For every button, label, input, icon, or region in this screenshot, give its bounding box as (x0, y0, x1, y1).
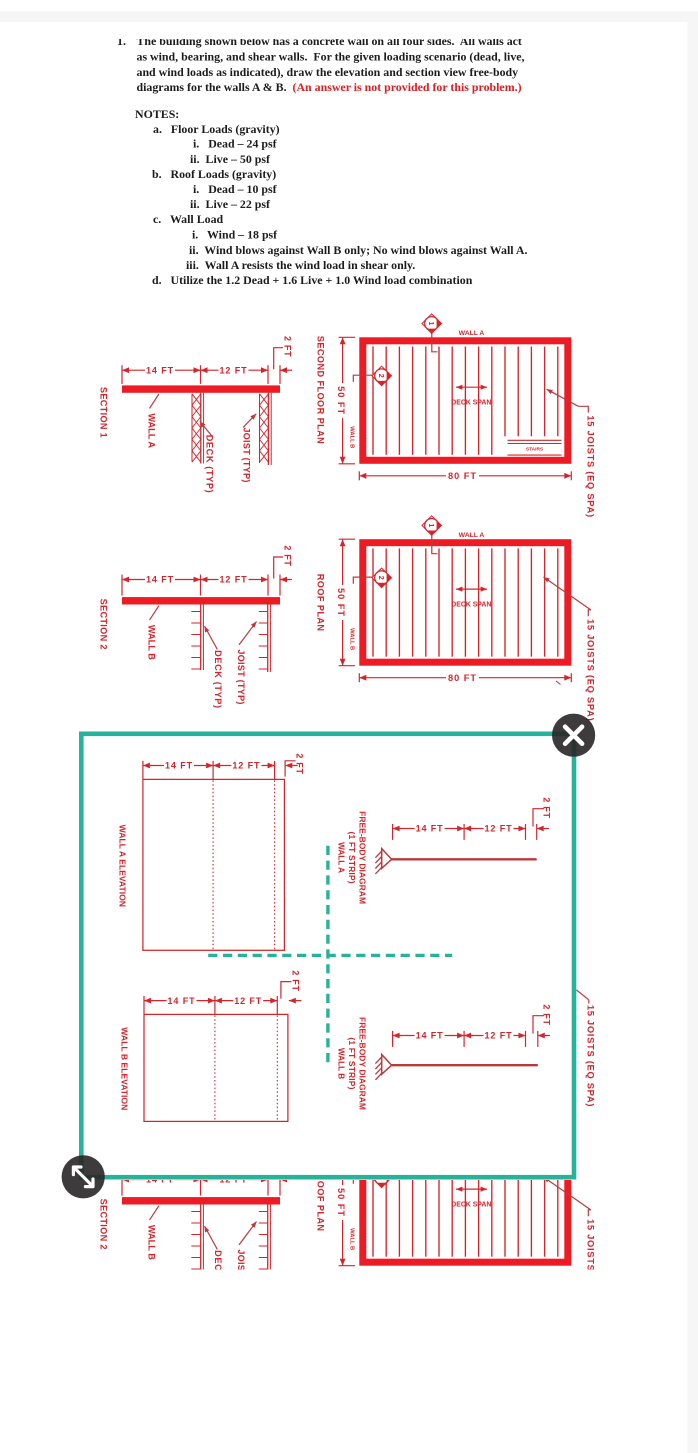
svg-text:FREE-BODY DIAGRAM: FREE-BODY DIAGRAM (358, 1017, 368, 1110)
svg-text:i. Dead – 24 psf: i. Dead – 24 psf (193, 137, 278, 151)
svg-text:12 FT: 12 FT (232, 761, 260, 771)
svg-text:DECK (TYP): DECK (TYP) (205, 435, 215, 494)
svg-text:WALL A: WALL A (459, 532, 485, 539)
svg-text:a. Floor Loads (gravity): a. Floor Loads (gravity) (153, 122, 280, 136)
svg-text:14 FT: 14 FT (146, 365, 174, 375)
svg-text:12 FT: 12 FT (484, 824, 512, 834)
svg-text:1: 1 (427, 322, 436, 326)
svg-text:14 FT: 14 FT (146, 575, 174, 585)
svg-text:WALL B: WALL B (348, 628, 354, 650)
svg-text:1: 1 (427, 523, 436, 527)
svg-text:b. Roof Loads (gravity): b. Roof Loads (gravity) (152, 167, 276, 181)
svg-text:diagrams for the walls A & B.: diagrams for the walls A & B. (An answer… (137, 80, 522, 94)
svg-text:DECK (TYP): DECK (TYP) (213, 650, 223, 709)
svg-text:80 FT: 80 FT (448, 673, 477, 683)
svg-text:WALL A ELEVATION: WALL A ELEVATION (117, 825, 127, 907)
svg-text:14 FT: 14 FT (416, 1031, 444, 1041)
svg-text:15 JOISTS (EQ SPA): 15 JOISTS (EQ SPA) (585, 415, 596, 517)
svg-text:d. Utilize the 1.2 Dead + 1.: d. Utilize the 1.2 Dead + 1.6 Live + 1.0… (152, 273, 473, 287)
svg-text:WALL A: WALL A (147, 413, 157, 448)
svg-text:WALL A: WALL A (336, 842, 345, 873)
svg-text:2 FT: 2 FT (283, 545, 293, 566)
svg-text:DECK SPAN: DECK SPAN (451, 400, 491, 407)
svg-text:WALL A: WALL A (459, 330, 485, 337)
svg-text:2 FT: 2 FT (295, 753, 305, 774)
svg-text:15 JOISTS (EQ SPA): 15 JOISTS (EQ SPA) (585, 619, 596, 721)
svg-text:12 FT: 12 FT (484, 1031, 512, 1041)
svg-text:i. Wind – 18 psf: i. Wind – 18 psf (192, 228, 278, 242)
svg-text:(1 FT STRIP): (1 FT STRIP) (347, 1037, 357, 1089)
svg-text:(1 FT STRIP): (1 FT STRIP) (347, 831, 357, 883)
svg-text:SECTION 2: SECTION 2 (98, 599, 108, 650)
svg-text:WALL B: WALL B (147, 625, 157, 660)
svg-text:ii. Live – 50 psf: ii. Live – 50 psf (190, 152, 271, 166)
svg-text:15 JOISTS (EQ SPA): 15 JOISTS (EQ SPA) (586, 1005, 597, 1107)
svg-text:FREE-BODY DIAGRAM: FREE-BODY DIAGRAM (358, 811, 368, 904)
svg-text:2 FT: 2 FT (541, 1004, 551, 1025)
svg-text:SECTION 1: SECTION 1 (98, 387, 108, 438)
svg-text:14 FT: 14 FT (165, 761, 193, 771)
svg-text:SECOND FLOOR PLAN: SECOND FLOOR PLAN (316, 336, 326, 444)
svg-text:ii. Live – 22 psf: ii. Live – 22 psf (190, 197, 271, 211)
svg-text:iii. Wall A resists the wind: iii. Wall A resists the wind load in she… (186, 258, 415, 272)
svg-text:as wind, bearing, and shear wa: as wind, bearing, and shear walls. For t… (137, 49, 525, 63)
svg-text:2: 2 (377, 374, 386, 378)
svg-text:WALL B: WALL B (336, 1048, 345, 1079)
svg-text:WALL B ELEVATION: WALL B ELEVATION (120, 1027, 130, 1110)
svg-text:c. Wall Load: c. Wall Load (153, 212, 224, 226)
svg-text:12 FT: 12 FT (219, 575, 247, 585)
svg-text:and wind loads as indicated),: and wind loads as indicated), draw the e… (137, 65, 519, 79)
svg-text:2 FT: 2 FT (541, 797, 551, 818)
svg-text:i. Dead – 10 psf: i. Dead – 10 psf (193, 182, 278, 196)
svg-text:50 FT: 50 FT (336, 588, 346, 617)
svg-text:WALL B: WALL B (348, 426, 354, 448)
svg-text:14 FT: 14 FT (167, 996, 195, 1006)
svg-text:JOIST (TYP): JOIST (TYP) (241, 427, 251, 482)
svg-text:2 FT: 2 FT (283, 336, 293, 357)
svg-text:80 FT: 80 FT (448, 471, 477, 481)
svg-text:2 FT: 2 FT (290, 970, 300, 991)
svg-text:ROOF PLAN: ROOF PLAN (316, 574, 326, 632)
svg-text:2: 2 (377, 576, 386, 580)
svg-text:14 FT: 14 FT (416, 824, 444, 834)
svg-text:DECK SPAN: DECK SPAN (451, 602, 491, 609)
svg-text:NOTES:: NOTES: (135, 107, 179, 121)
svg-text:12 FT: 12 FT (219, 365, 247, 375)
svg-text:STAIRS: STAIRS (526, 447, 544, 453)
svg-text:50 FT: 50 FT (336, 386, 346, 415)
svg-text:ii. Wind blows against Wall B: ii. Wind blows against Wall B only; No w… (189, 243, 527, 257)
svg-text:JOIST (TYP): JOIST (TYP) (236, 649, 246, 704)
svg-text:12 FT: 12 FT (234, 996, 262, 1006)
